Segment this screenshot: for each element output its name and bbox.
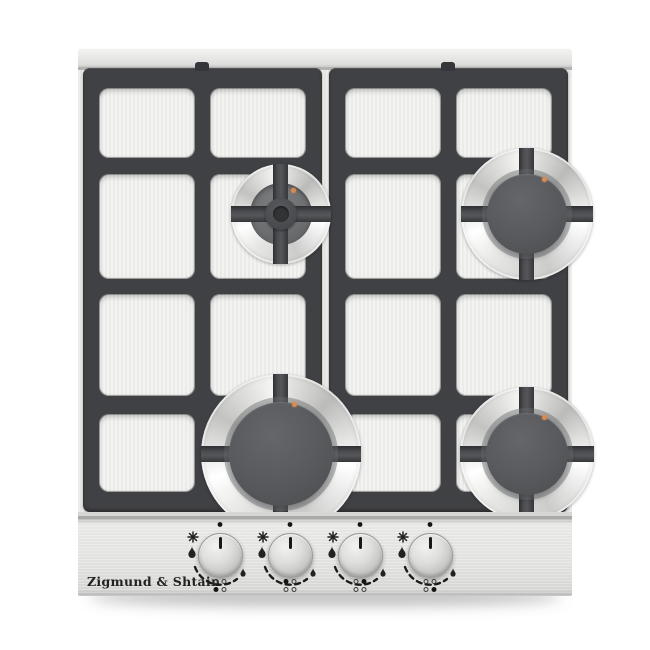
burner-position-indicator (354, 579, 367, 592)
igniter-dot (291, 188, 296, 193)
low-flame-icon (240, 568, 245, 577)
indicator-dot (362, 587, 367, 592)
burner-knob (198, 533, 243, 578)
ignition-spark-icon (328, 532, 338, 542)
burner-cap (486, 413, 568, 495)
igniter-dot (292, 402, 297, 407)
burner-knob (338, 533, 383, 578)
indicator-dot (222, 587, 227, 592)
power-off-dot-icon (428, 522, 433, 527)
indicator-dot (432, 579, 437, 584)
high-flame-icon (398, 546, 405, 558)
indicator-dot (424, 587, 429, 592)
knob-pointer (429, 537, 432, 549)
ignition-spark-icon (188, 532, 198, 542)
indicator-dot (214, 579, 219, 584)
low-flame-icon (450, 568, 455, 577)
grate-cutout (99, 174, 195, 279)
indicator-dot (284, 587, 289, 592)
indicator-dot (424, 579, 429, 584)
low-flame-icon (380, 568, 385, 577)
indicator-dot (354, 579, 359, 584)
knob-unit-2 (255, 518, 325, 596)
burner-position-indicator (214, 579, 227, 592)
burner-rear-right (461, 148, 593, 280)
indicator-dot (354, 587, 359, 592)
burner-front-right (460, 387, 594, 521)
low-flame-icon (310, 568, 315, 577)
indicator-dot (214, 587, 219, 592)
grate-cutout (345, 88, 441, 158)
grate-hub-center (273, 206, 289, 222)
knob-unit-4 (395, 518, 465, 596)
rear-edge-strip (78, 48, 572, 67)
knob-unit-1 (185, 518, 255, 596)
indicator-dot (284, 579, 289, 584)
knob-pointer (219, 537, 222, 549)
burner-cap (487, 174, 567, 254)
high-flame-icon (258, 546, 265, 558)
grate-cutout (99, 414, 195, 492)
burner-knob (408, 533, 453, 578)
knob-pointer (289, 537, 292, 549)
igniter-dot (542, 177, 547, 182)
indicator-dot (292, 587, 297, 592)
high-flame-icon (188, 546, 195, 558)
grate-cutout (210, 88, 306, 158)
grate-tab (195, 62, 209, 71)
indicator-dot (432, 587, 437, 592)
power-off-dot-icon (358, 522, 363, 527)
product-photo-gas-hob: Zigmund & Shtain (0, 0, 650, 650)
grate-cutout (456, 294, 552, 396)
burner-rear-left (231, 164, 331, 264)
power-off-dot-icon (288, 522, 293, 527)
ignition-spark-icon (258, 532, 268, 542)
burner-position-indicator (284, 579, 297, 592)
hob-body: Zigmund & Shtain (78, 48, 572, 596)
indicator-dot (222, 579, 227, 584)
power-off-dot-icon (218, 522, 223, 527)
igniter-dot (542, 415, 547, 420)
grate-tab (441, 62, 455, 71)
burner-knob (268, 533, 313, 578)
knob-pointer (359, 537, 362, 549)
indicator-dot (362, 579, 367, 584)
burner-position-indicator (424, 579, 437, 592)
grate-cutout (345, 174, 441, 279)
burner-cap (229, 402, 333, 506)
grate-cutout (99, 294, 195, 396)
grate-cutout (99, 88, 195, 158)
ignition-spark-icon (398, 532, 408, 542)
high-flame-icon (328, 546, 335, 558)
burner-front-left (201, 374, 361, 534)
indicator-dot (292, 579, 297, 584)
knob-unit-3 (325, 518, 395, 596)
